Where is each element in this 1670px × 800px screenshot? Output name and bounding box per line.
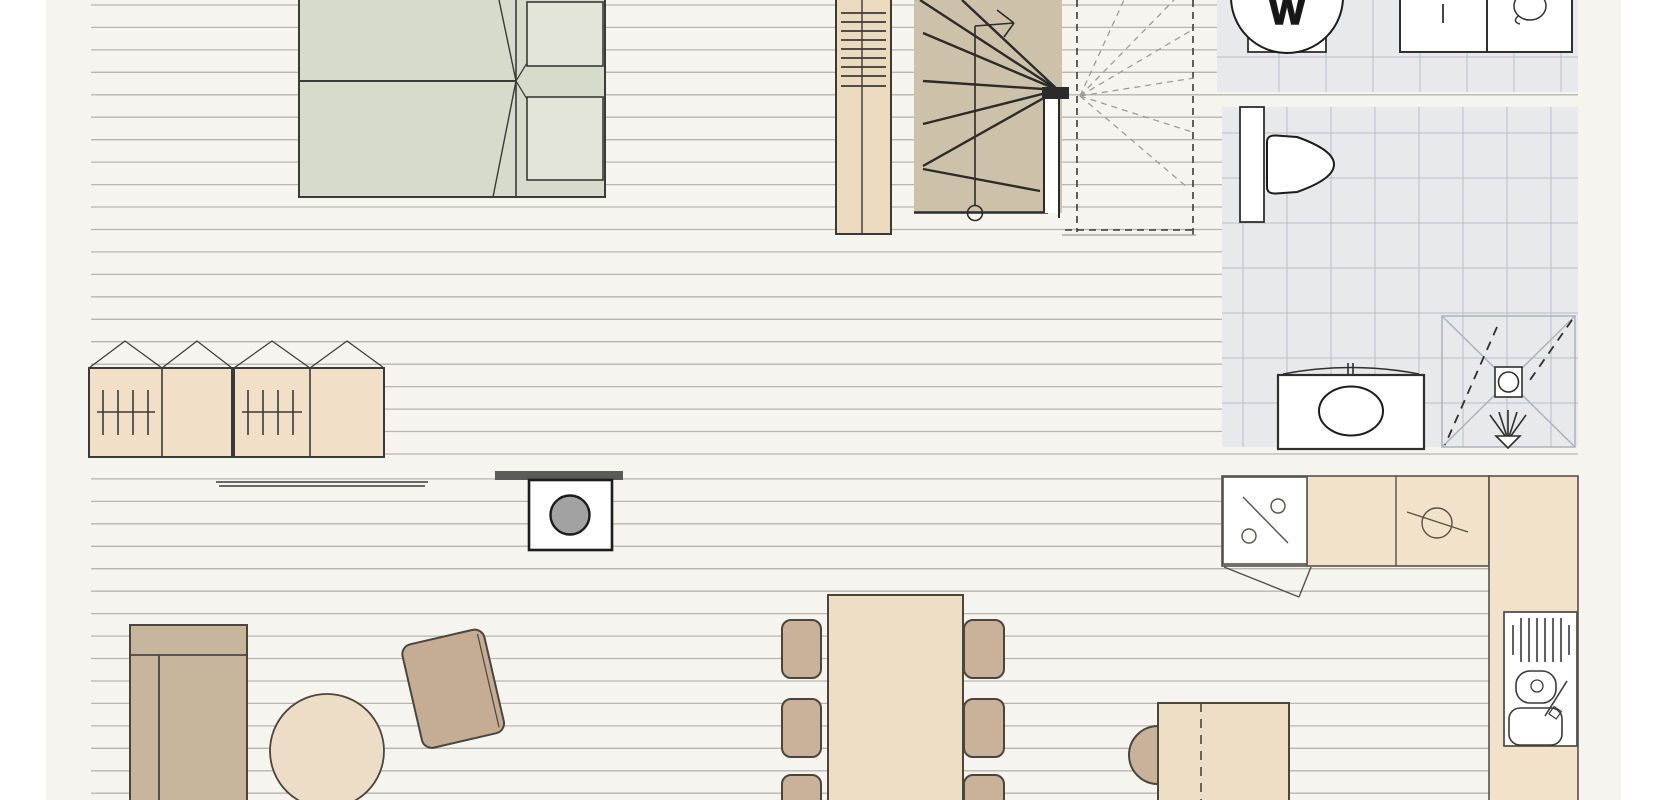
svg-text:W: W [1269,0,1305,33]
